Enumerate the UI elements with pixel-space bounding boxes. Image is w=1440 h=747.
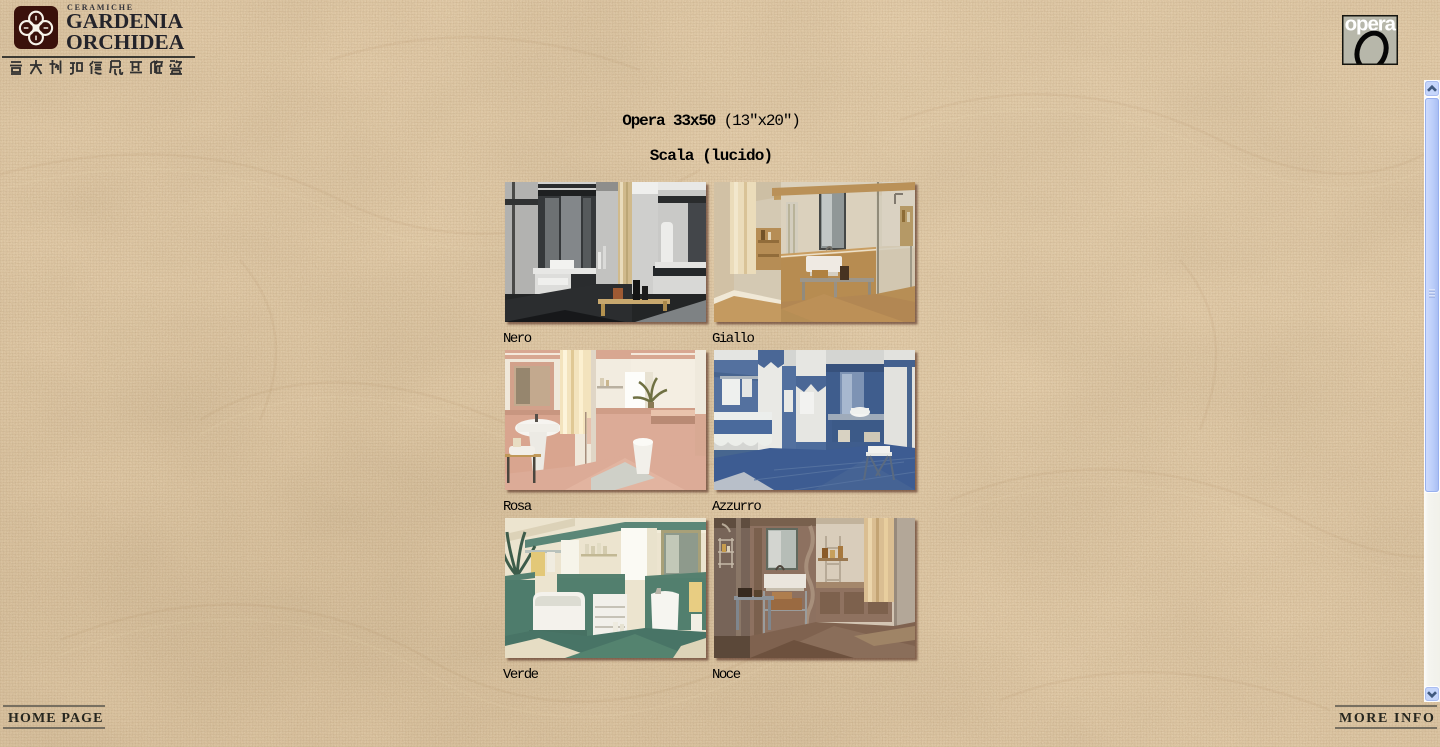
svg-text:opera: opera <box>1345 15 1397 36</box>
